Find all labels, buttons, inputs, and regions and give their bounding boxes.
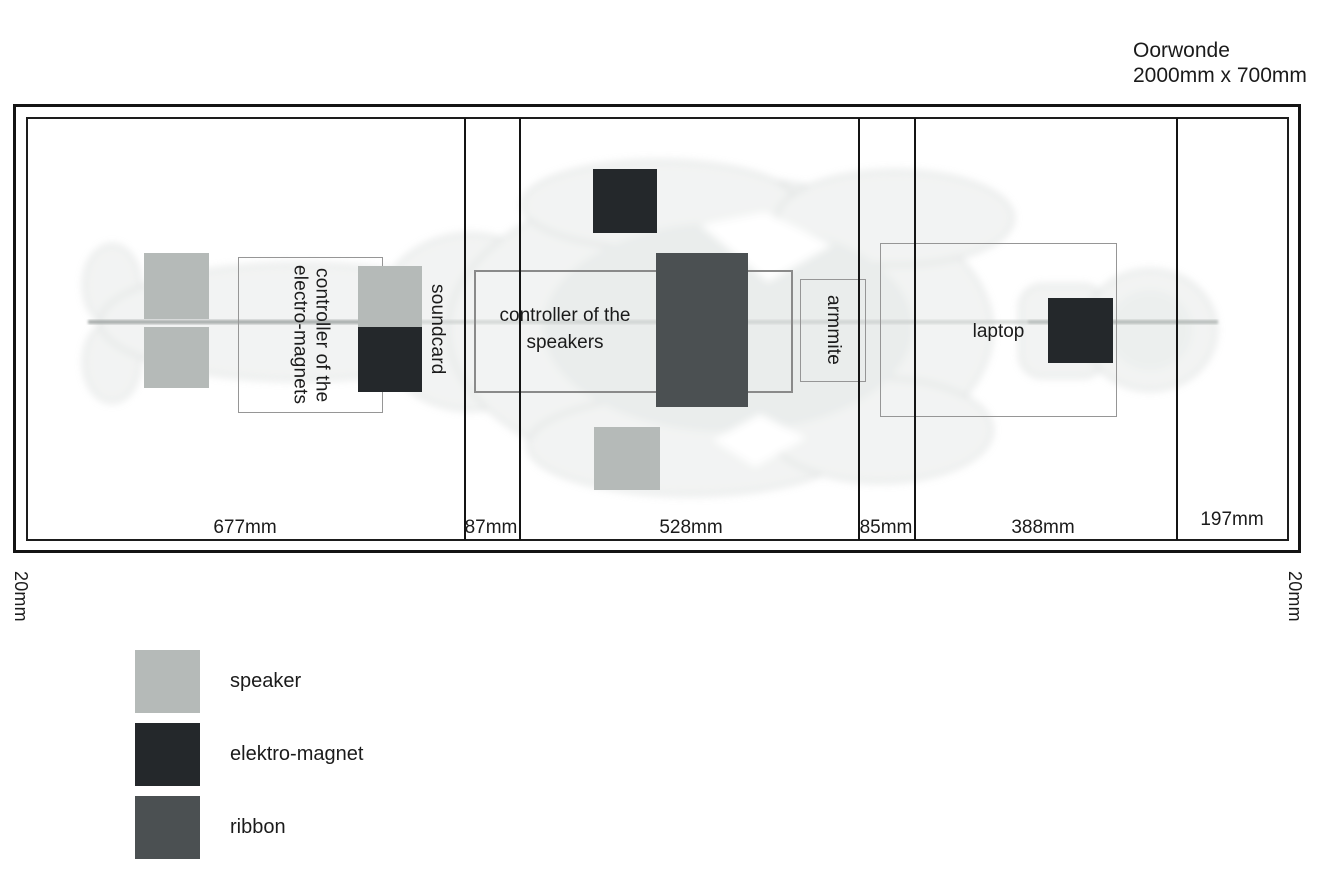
soundcard-label-wrap: soundcard [420,266,454,392]
electro-controller-label: controller of the electro-magnets [289,265,333,404]
page-title: Oorwonde [1133,38,1307,63]
legend-label-ribbon: ribbon [230,816,286,839]
speaker-block-left-bottom [144,327,209,388]
armmite-label: armmite [822,295,844,365]
page-title-dimensions: 2000mm x 700mm [1133,63,1307,88]
legend-item-ribbon: ribbon [135,796,363,859]
laptop-label: laptop [880,318,1117,345]
section-dim-label-5: 388mm [973,517,1113,539]
legend-label-elektro-magnet: elektro-magnet [230,743,363,766]
magnet-block-soundcard [358,327,422,392]
section-dim-label-3: 528mm [621,517,761,539]
speaker-block-left-top [144,253,209,319]
section-line-1 [464,118,466,540]
section-dim-label-4: 85mm [816,517,956,539]
armmite-box: armmite [800,279,866,382]
legend-swatch-elektro-magnet [135,723,200,786]
soundcard-label: soundcard [426,284,448,375]
diagram-page: { "title": { "name": "Oorwonde", "size":… [0,0,1330,882]
magnet-block-top [593,169,657,233]
legend-item-elektro-magnet: elektro-magnet [135,723,363,786]
speakers-controller-label: controller of the speakers [474,302,656,356]
legend-swatch-speaker [135,650,200,713]
margin-label-right: 20mm [1284,560,1306,632]
speaker-block-bottom [594,427,660,490]
section-dim-label-2: 87mm [421,517,561,539]
page-title-block: Oorwonde 2000mm x 700mm [1133,38,1307,88]
legend-item-speaker: speaker [135,650,363,713]
section-line-3 [858,118,860,540]
legend-label-speaker: speaker [230,670,301,693]
speaker-block-soundcard [358,266,422,327]
ribbon-block [656,253,748,407]
section-dim-label-1: 677mm [175,517,315,539]
legend-swatch-ribbon [135,796,200,859]
section-dim-label-6: 197mm [1162,509,1302,531]
legend: speaker elektro-magnet ribbon [135,650,363,859]
margin-label-left: 20mm [10,560,32,632]
section-line-5 [1176,118,1178,540]
